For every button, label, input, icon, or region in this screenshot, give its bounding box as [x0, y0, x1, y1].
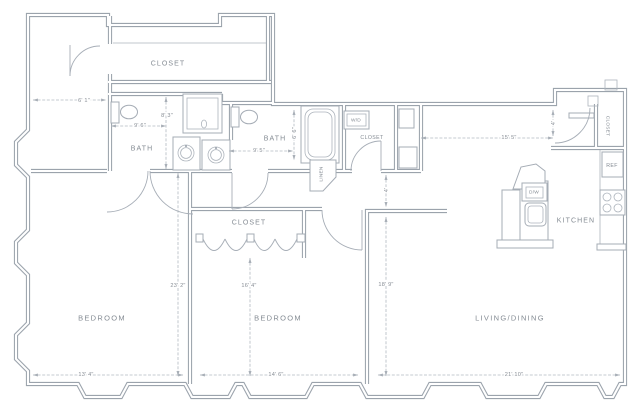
dim-bath2-depth: 6' 6" — [292, 127, 298, 139]
dim-bath1-width: 9' 6" — [134, 123, 146, 129]
label-washer-dryer: W/D — [351, 118, 361, 124]
label-bath-2: BATH — [264, 135, 287, 142]
dim-entry-hall: 6' 1" — [78, 98, 90, 104]
door-arc — [70, 45, 100, 76]
label-bedroom-2: BEDROOM — [254, 314, 302, 323]
dim-bedroom2-closet: 16' 4" — [241, 283, 256, 289]
bathtub-icon — [301, 106, 339, 163]
counter-end — [597, 244, 626, 250]
label-dishwasher: D/W — [529, 190, 539, 196]
shower-icon — [183, 94, 222, 133]
bifold-doors — [196, 234, 305, 251]
dim-foyer-hall: 15' 5" — [501, 135, 516, 141]
dim-bedroom1-width: 13' 4" — [78, 372, 93, 378]
dim-bedroom2-width: 14' 6" — [268, 372, 283, 378]
dim-living-depth: 18' 9" — [378, 282, 393, 288]
label-wd-closet: CLOSET — [360, 135, 384, 141]
toilet-icon — [111, 102, 138, 123]
label-entry-closet: CLOSET — [604, 116, 610, 136]
label-top-closet: CLOSET — [151, 60, 186, 67]
door-arc — [322, 210, 362, 250]
dim-living-width: 21' 10" — [505, 372, 523, 378]
label-linen: LINEN — [319, 166, 325, 181]
closet-cubby — [399, 109, 414, 128]
floor-plan: CLOSET BATH BATH LINEN W/D CLOSET CLOSET… — [0, 0, 639, 411]
stove-icon — [600, 190, 625, 215]
door-arc — [107, 171, 148, 212]
floor-plan-canvas: CLOSET BATH BATH LINEN W/D CLOSET CLOSET… — [0, 0, 639, 411]
living-wall — [367, 211, 447, 384]
dim-foyer-width: 4' — [551, 121, 557, 126]
closet-cubby — [399, 147, 417, 168]
sink-icon — [173, 137, 200, 170]
door-arc — [150, 171, 193, 214]
label-bedroom2-closet: CLOSET — [232, 219, 267, 226]
toilet-icon — [231, 107, 258, 127]
label-living-dining: LIVING/DINING — [475, 314, 545, 323]
label-bedroom-1: BEDROOM — [78, 314, 126, 323]
island-base — [497, 240, 553, 248]
dim-bedroom1-depth: 23' 2" — [170, 283, 185, 289]
kitchen-island — [497, 164, 553, 248]
dim-bath2-width: 9' 5" — [253, 148, 265, 154]
dim-hall-width: 4' — [384, 188, 390, 193]
label-refrigerator: REF — [606, 163, 618, 169]
dim-bath1-depth: 8' 3" — [161, 113, 173, 119]
bath2-top-wall — [221, 94, 273, 103]
label-bath-1: BATH — [131, 145, 154, 152]
door-arc — [232, 173, 268, 209]
door-arc — [351, 141, 381, 171]
label-kitchen: KITCHEN — [557, 217, 595, 224]
closet-door-leaf — [569, 113, 594, 118]
sink-icon — [202, 140, 230, 170]
